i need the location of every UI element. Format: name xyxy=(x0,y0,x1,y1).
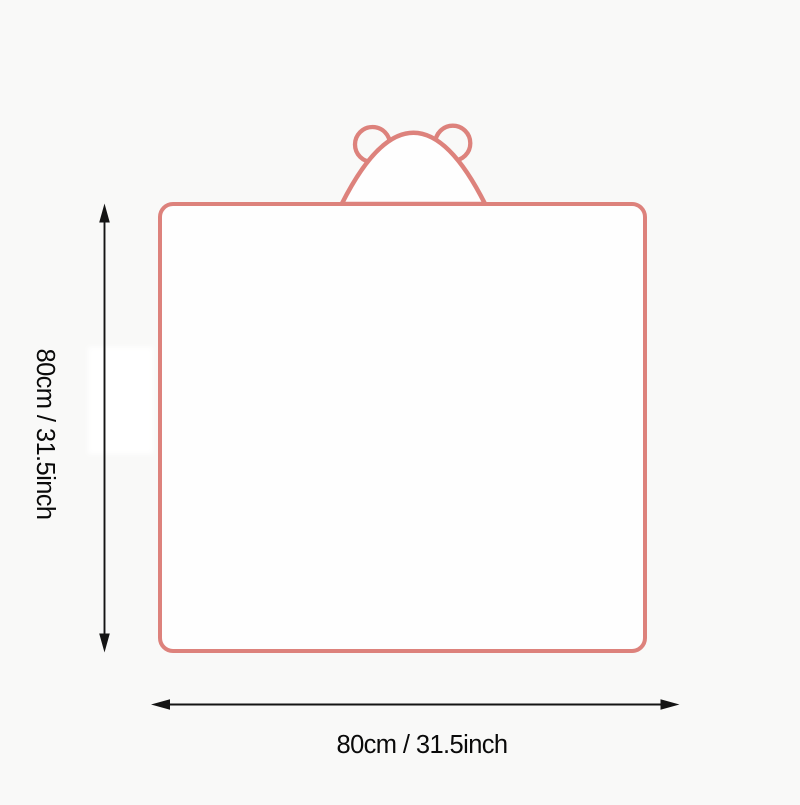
svg-text:80cm / 31.5inch: 80cm / 31.5inch xyxy=(31,348,59,519)
svg-text:80cm / 31.5inch: 80cm / 31.5inch xyxy=(336,731,507,759)
